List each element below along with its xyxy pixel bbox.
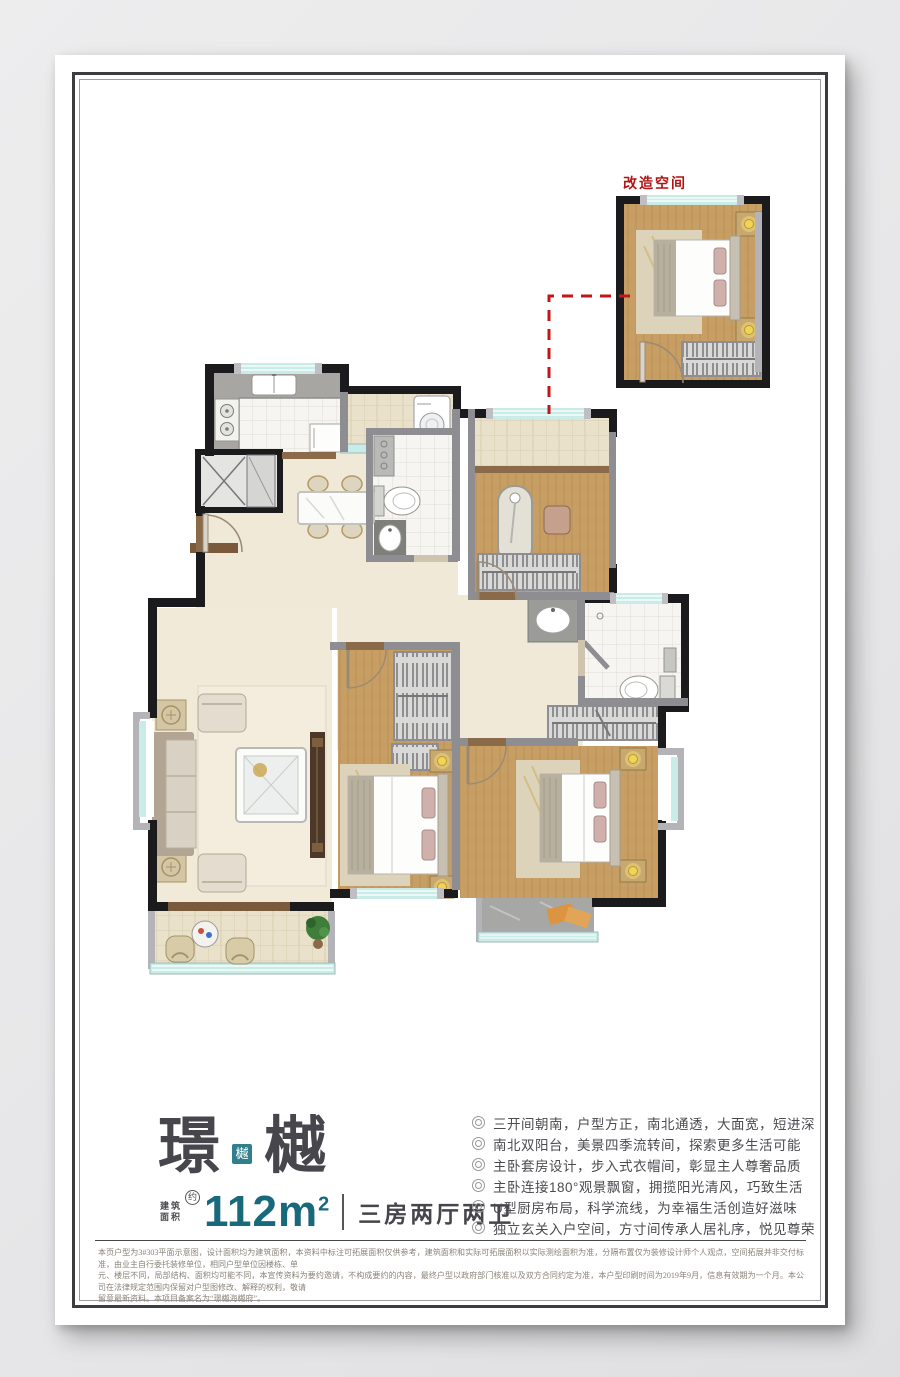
master-balcony xyxy=(476,898,598,942)
bullet-ring-icon xyxy=(472,1137,485,1150)
vanity-counter xyxy=(528,598,578,642)
bay-window-master xyxy=(658,748,684,830)
bay-window-living xyxy=(133,712,154,830)
area-label: 建筑 面积 xyxy=(160,1201,182,1223)
living-room xyxy=(152,608,332,905)
divider-rule xyxy=(95,1240,806,1241)
title-char-2: 樾 xyxy=(264,1116,326,1178)
feature-item: 南北双阳台，美景四季流转间，探索更多生活可能 xyxy=(472,1133,808,1154)
public-bathroom xyxy=(372,434,452,556)
feature-item: 独立玄关入户空间，方寸间传承人居礼序，悦见尊荣 xyxy=(472,1217,808,1238)
bullet-ring-icon xyxy=(472,1116,485,1129)
unit-title: 璟 樾 樾 xyxy=(158,1116,326,1178)
area-row: 建筑 面积 约 112m2 三房两厅两卫 xyxy=(160,1190,514,1234)
feature-list: 三开间朝南，户型方正，南北通透，大面宽，短进深 南北双阳台，美景四季流转间，探索… xyxy=(472,1112,808,1238)
page-background: { "poster": { "inset_label": "改造空间", "ti… xyxy=(0,0,900,1377)
inset-window xyxy=(640,195,744,205)
kitchen xyxy=(213,372,344,454)
living-balcony xyxy=(148,911,335,974)
approx-symbol: 约 xyxy=(185,1190,200,1205)
elevator-core xyxy=(198,452,280,510)
master-bedroom xyxy=(460,746,658,898)
main-floor-plan xyxy=(133,363,689,974)
bullet-ring-icon xyxy=(472,1200,485,1213)
bullet-ring-icon xyxy=(472,1158,485,1171)
inset-floor-plan xyxy=(616,195,770,388)
bullet-ring-icon xyxy=(472,1221,485,1234)
feature-item: 主卧套房设计，步入式衣帽间，彰显主人尊奢品质 xyxy=(472,1154,808,1175)
title-seal: 樾 xyxy=(232,1144,252,1164)
feature-item: U型厨房布局，科学流线，为幸福生活创造好滋味 xyxy=(472,1196,808,1217)
renovation-label: 改造空间 xyxy=(623,173,687,193)
title-char-1: 璟 xyxy=(158,1116,220,1178)
area-divider xyxy=(342,1194,344,1230)
master-bathroom xyxy=(584,602,681,706)
feature-item: 主卧连接180°观景飘窗，拥揽阳光清风，巧致生活 xyxy=(472,1175,808,1196)
disclaimer-text: 本页户型为3#303平面示意图，设计面积均为建筑面积，本资料中标注可拓展面积仅供… xyxy=(98,1247,804,1305)
feature-item: 三开间朝南，户型方正，南北通透，大面宽，短进深 xyxy=(472,1112,808,1133)
area-value: 112m2 xyxy=(204,1190,330,1234)
bullet-ring-icon xyxy=(472,1179,485,1192)
